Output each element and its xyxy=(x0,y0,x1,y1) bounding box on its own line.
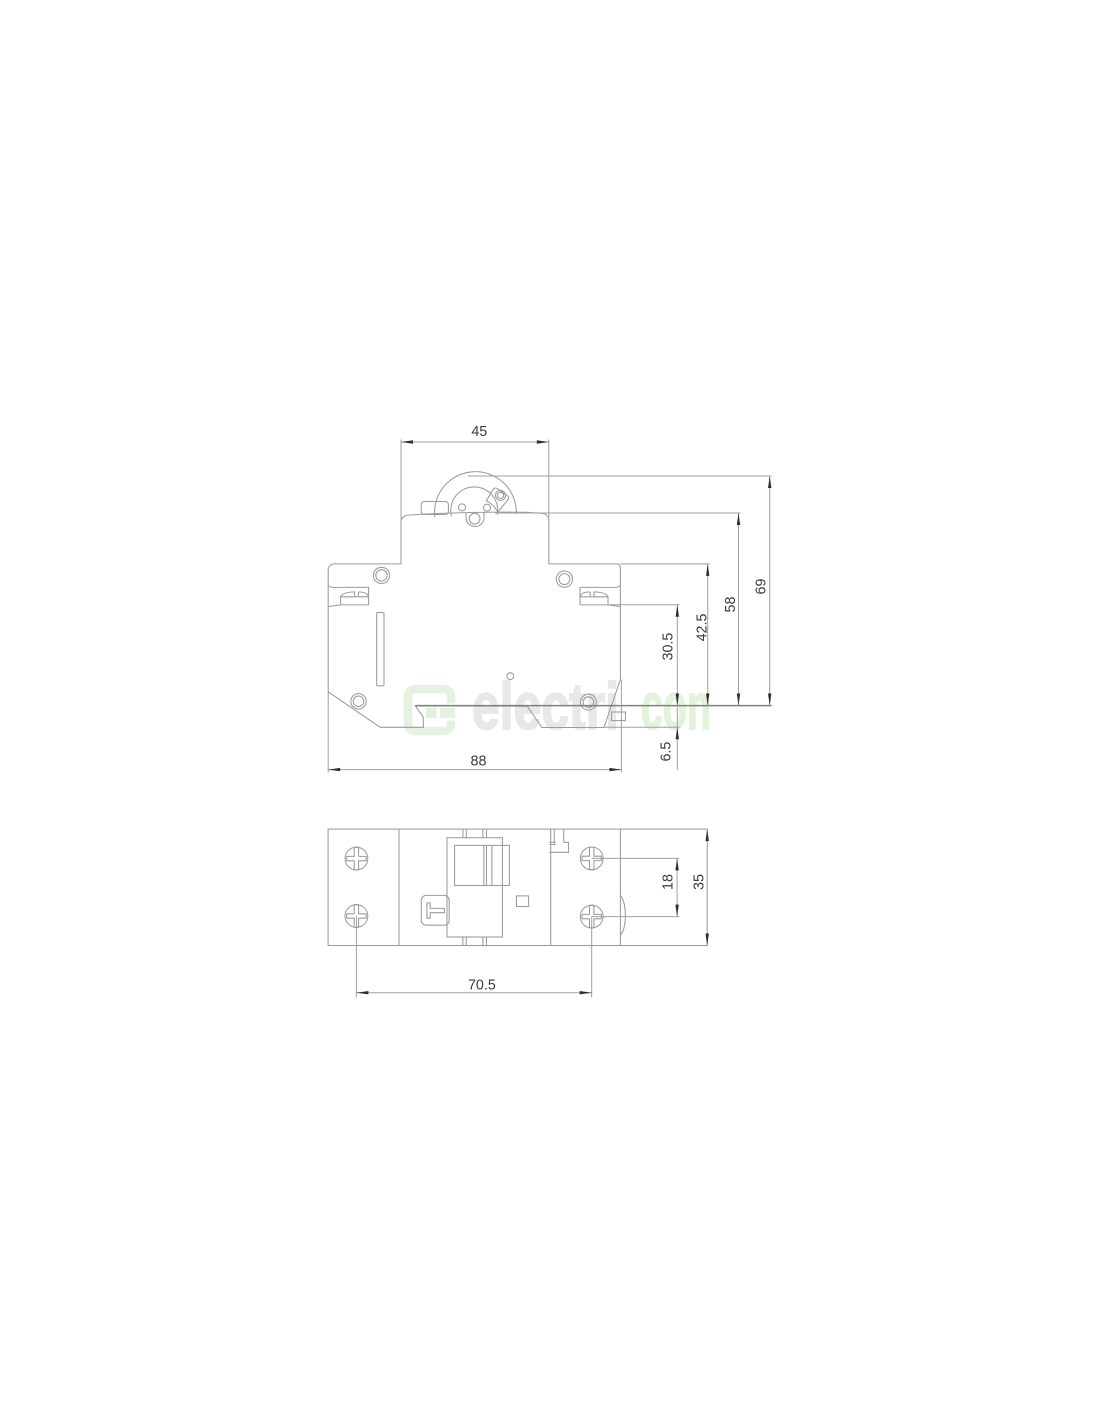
svg-text:69: 69 xyxy=(753,579,769,595)
svg-text:6.5: 6.5 xyxy=(658,742,674,762)
svg-text:88: 88 xyxy=(471,753,487,769)
svg-text:18: 18 xyxy=(661,874,677,890)
svg-text:58: 58 xyxy=(723,597,739,613)
svg-text:70.5: 70.5 xyxy=(468,977,496,993)
svg-text:35: 35 xyxy=(692,874,708,890)
svg-text:30.5: 30.5 xyxy=(660,633,676,661)
svg-text:42.5: 42.5 xyxy=(695,614,711,642)
svg-text:45: 45 xyxy=(471,424,487,440)
